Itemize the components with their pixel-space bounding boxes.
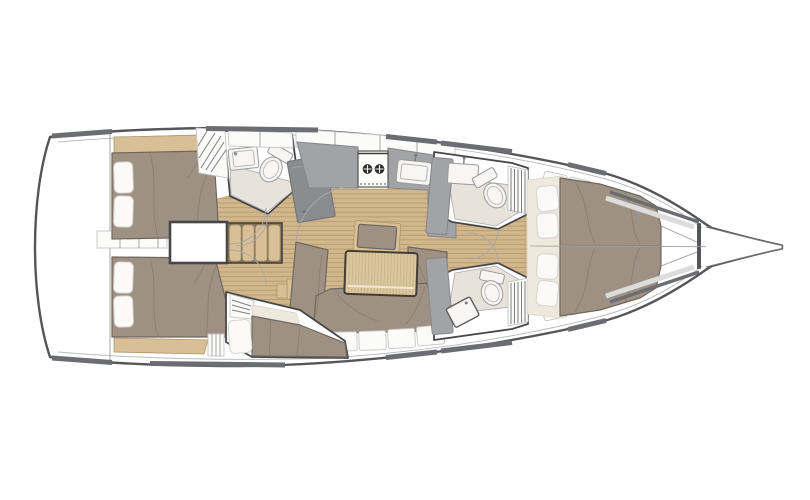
stair-tread bbox=[256, 225, 268, 261]
floorplan-svg bbox=[0, 0, 810, 500]
companionway-stairs bbox=[227, 223, 282, 263]
pillow bbox=[536, 212, 558, 238]
overhead-cabinet bbox=[228, 130, 293, 148]
engine-box bbox=[170, 222, 227, 263]
pillow bbox=[228, 319, 252, 353]
salon-table bbox=[344, 251, 417, 296]
head-forward-starboard bbox=[426, 257, 528, 340]
faucet bbox=[415, 156, 416, 161]
stair-tread bbox=[269, 225, 281, 261]
pillow bbox=[536, 253, 558, 279]
side-step bbox=[277, 284, 287, 298]
bow-bulkhead bbox=[697, 223, 701, 269]
pillow bbox=[536, 280, 559, 307]
bench-cushion bbox=[357, 224, 397, 250]
pillow bbox=[113, 262, 133, 294]
pillow bbox=[113, 296, 133, 328]
hatch-segment bbox=[150, 364, 285, 366]
hatch-segment bbox=[206, 129, 318, 131]
stair-tread bbox=[243, 225, 255, 261]
yacht-floorplan bbox=[0, 0, 810, 500]
head-forward-port bbox=[426, 152, 528, 235]
shelf-trim bbox=[114, 338, 208, 354]
salon-bench bbox=[353, 220, 401, 253]
table-grain bbox=[344, 251, 417, 296]
louver-locker bbox=[508, 278, 528, 326]
pillow bbox=[113, 162, 133, 194]
island-berth bbox=[527, 176, 661, 318]
pillow bbox=[536, 185, 559, 212]
bowsprit bbox=[706, 227, 782, 267]
pillow bbox=[113, 196, 133, 228]
louver-locker bbox=[196, 128, 228, 178]
cabin-steps bbox=[208, 334, 224, 356]
head-sink bbox=[228, 146, 259, 170]
stove bbox=[358, 151, 390, 187]
louver-locker bbox=[508, 166, 528, 214]
